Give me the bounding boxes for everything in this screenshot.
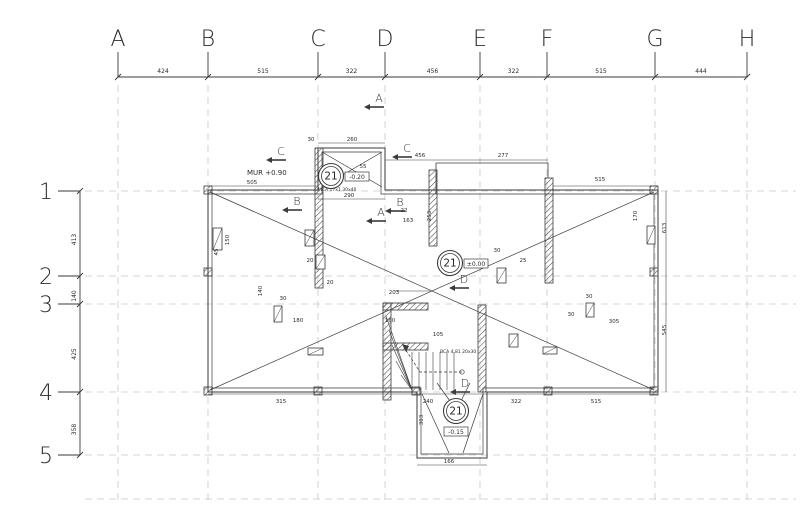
svg-text:444: 444 (695, 68, 707, 75)
svg-text:425: 425 (71, 348, 78, 360)
svg-text:MCA 17x1 30x40: MCA 17x1 30x40 (318, 187, 356, 193)
svg-text:D: D (461, 377, 469, 390)
svg-text:A: A (375, 92, 383, 105)
svg-text:456: 456 (415, 153, 426, 159)
svg-text:2: 2 (39, 265, 53, 290)
svg-text:30: 30 (308, 137, 315, 143)
svg-text:515: 515 (595, 177, 606, 183)
svg-text:180: 180 (293, 318, 304, 324)
svg-text:1: 1 (39, 180, 53, 205)
svg-text:140: 140 (258, 285, 264, 296)
svg-text:505: 505 (247, 180, 258, 186)
svg-text:277: 277 (498, 153, 509, 159)
svg-text:A: A (377, 206, 385, 219)
svg-text:303: 303 (419, 414, 425, 425)
svg-text:456: 456 (427, 68, 439, 75)
svg-text:B: B (293, 195, 300, 208)
svg-text:322: 322 (346, 68, 358, 75)
svg-text:MUR +0.90: MUR +0.90 (247, 169, 287, 177)
axis-system: ABCDEFGH12345424515322456322515444413140… (39, 27, 755, 469)
svg-text:315: 315 (276, 399, 287, 405)
svg-text:240: 240 (423, 399, 434, 405)
svg-text:F: F (541, 27, 554, 52)
svg-text:3: 3 (39, 293, 53, 318)
svg-text:322: 322 (508, 68, 520, 75)
svg-text:150: 150 (225, 234, 231, 245)
svg-text:-0.20: -0.20 (349, 174, 365, 181)
grid-lines (85, 85, 796, 502)
svg-text:613: 613 (662, 222, 668, 233)
svg-text:160: 160 (385, 318, 396, 324)
svg-text:163: 163 (403, 218, 414, 224)
svg-text:21: 21 (324, 171, 337, 183)
svg-text:25: 25 (520, 258, 527, 264)
svg-text:105: 105 (433, 332, 444, 338)
svg-text:515: 515 (591, 399, 602, 405)
svg-text:30: 30 (494, 248, 501, 254)
svg-text:140: 140 (71, 290, 78, 302)
svg-text:203: 203 (389, 290, 400, 296)
svg-text:20: 20 (327, 280, 334, 286)
svg-text:253: 253 (427, 210, 433, 221)
svg-text:-0.15: -0.15 (448, 429, 464, 436)
svg-text:D: D (460, 273, 468, 286)
svg-text:515: 515 (595, 68, 607, 75)
svg-text:545: 545 (662, 324, 668, 335)
svg-text:30: 30 (280, 296, 287, 302)
svg-text:55: 55 (360, 164, 367, 170)
svg-text:BCA 4.81 20x30: BCA 4.81 20x30 (440, 349, 476, 355)
svg-text:30: 30 (586, 294, 593, 300)
svg-text:C: C (310, 27, 325, 52)
svg-text:290: 290 (344, 193, 355, 199)
svg-text:515: 515 (257, 68, 269, 75)
svg-text:G: G (646, 27, 663, 52)
svg-text:H: H (739, 27, 756, 52)
svg-text:5: 5 (39, 444, 53, 469)
svg-text:45: 45 (214, 248, 220, 255)
svg-text:322: 322 (511, 399, 522, 405)
svg-text:21: 21 (443, 258, 456, 270)
svg-text:C: C (277, 145, 285, 158)
svg-text:B: B (396, 196, 403, 209)
svg-text:166: 166 (444, 459, 455, 465)
svg-text:358: 358 (71, 424, 78, 436)
svg-text:260: 260 (347, 137, 358, 143)
plan-svg: ABCDEFGH12345424515322456322515444413140… (0, 0, 800, 508)
svg-text:B: B (201, 27, 215, 52)
svg-text:±0.00: ±0.00 (467, 261, 486, 268)
svg-text:170: 170 (633, 210, 639, 221)
svg-text:A: A (110, 27, 125, 52)
svg-text:E: E (473, 27, 487, 52)
svg-text:30: 30 (568, 312, 575, 318)
svg-text:20: 20 (307, 258, 314, 264)
svg-text:21: 21 (449, 406, 462, 418)
cad-canvas: ABCDEFGH12345424515322456322515444413140… (0, 0, 800, 508)
svg-text:424: 424 (157, 68, 169, 75)
svg-text:4: 4 (39, 381, 53, 406)
svg-text:D: D (377, 27, 394, 52)
svg-text:305: 305 (609, 319, 620, 325)
svg-text:413: 413 (71, 234, 78, 246)
svg-text:C: C (403, 142, 411, 155)
